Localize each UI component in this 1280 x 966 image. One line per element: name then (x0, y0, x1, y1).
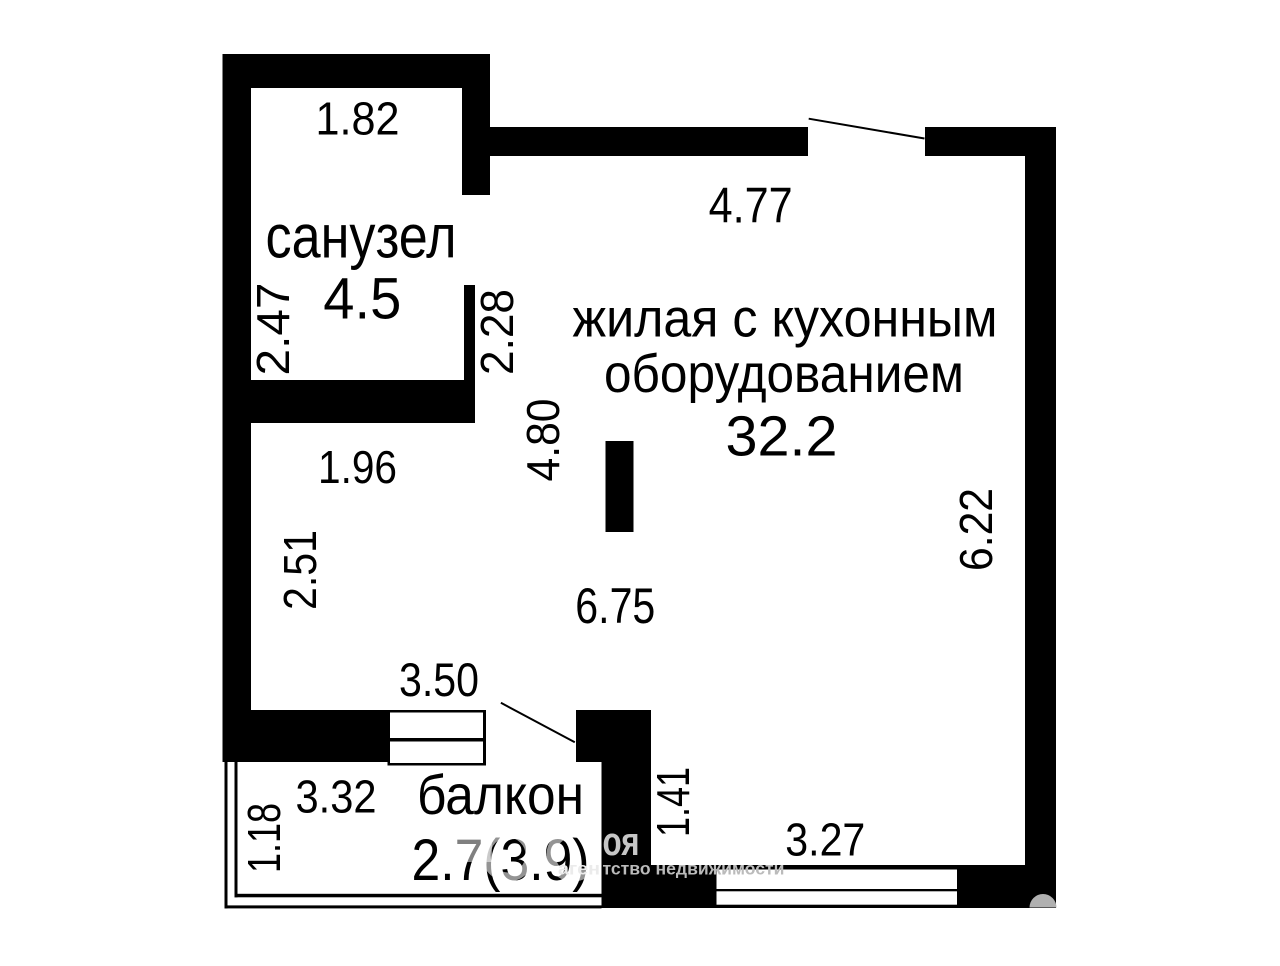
svg-text:2.28: 2.28 (471, 289, 523, 375)
svg-text:3.27: 3.27 (785, 814, 865, 866)
svg-text:тство недвижимости: тство недвижимости (603, 859, 785, 879)
svg-text:4.77: 4.77 (709, 178, 793, 234)
svg-text:32.2: 32.2 (726, 405, 838, 469)
svg-text:4.5: 4.5 (323, 267, 401, 332)
svg-text:жилая с кухонным: жилая с кухонным (573, 289, 998, 349)
svg-text:6.75: 6.75 (575, 578, 655, 634)
svg-text:1.41: 1.41 (647, 767, 699, 837)
svg-text:4.80: 4.80 (517, 399, 569, 482)
svg-text:1.18: 1.18 (238, 803, 290, 873)
svg-text:1.96: 1.96 (318, 441, 397, 493)
svg-text:6.22: 6.22 (950, 488, 1002, 571)
svg-text:3.50: 3.50 (399, 653, 479, 706)
svg-text:2.51: 2.51 (274, 530, 326, 610)
svg-text:оя: оя (603, 820, 640, 864)
svg-text:санузел: санузел (266, 203, 457, 271)
svg-text:аген: аген (558, 859, 600, 879)
svg-text:1.82: 1.82 (316, 93, 400, 145)
svg-text:оборудованием: оборудованием (604, 344, 964, 404)
svg-text:2.47: 2.47 (247, 283, 299, 376)
svg-text:балкон: балкон (417, 763, 584, 826)
svg-text:3.32: 3.32 (296, 771, 377, 823)
